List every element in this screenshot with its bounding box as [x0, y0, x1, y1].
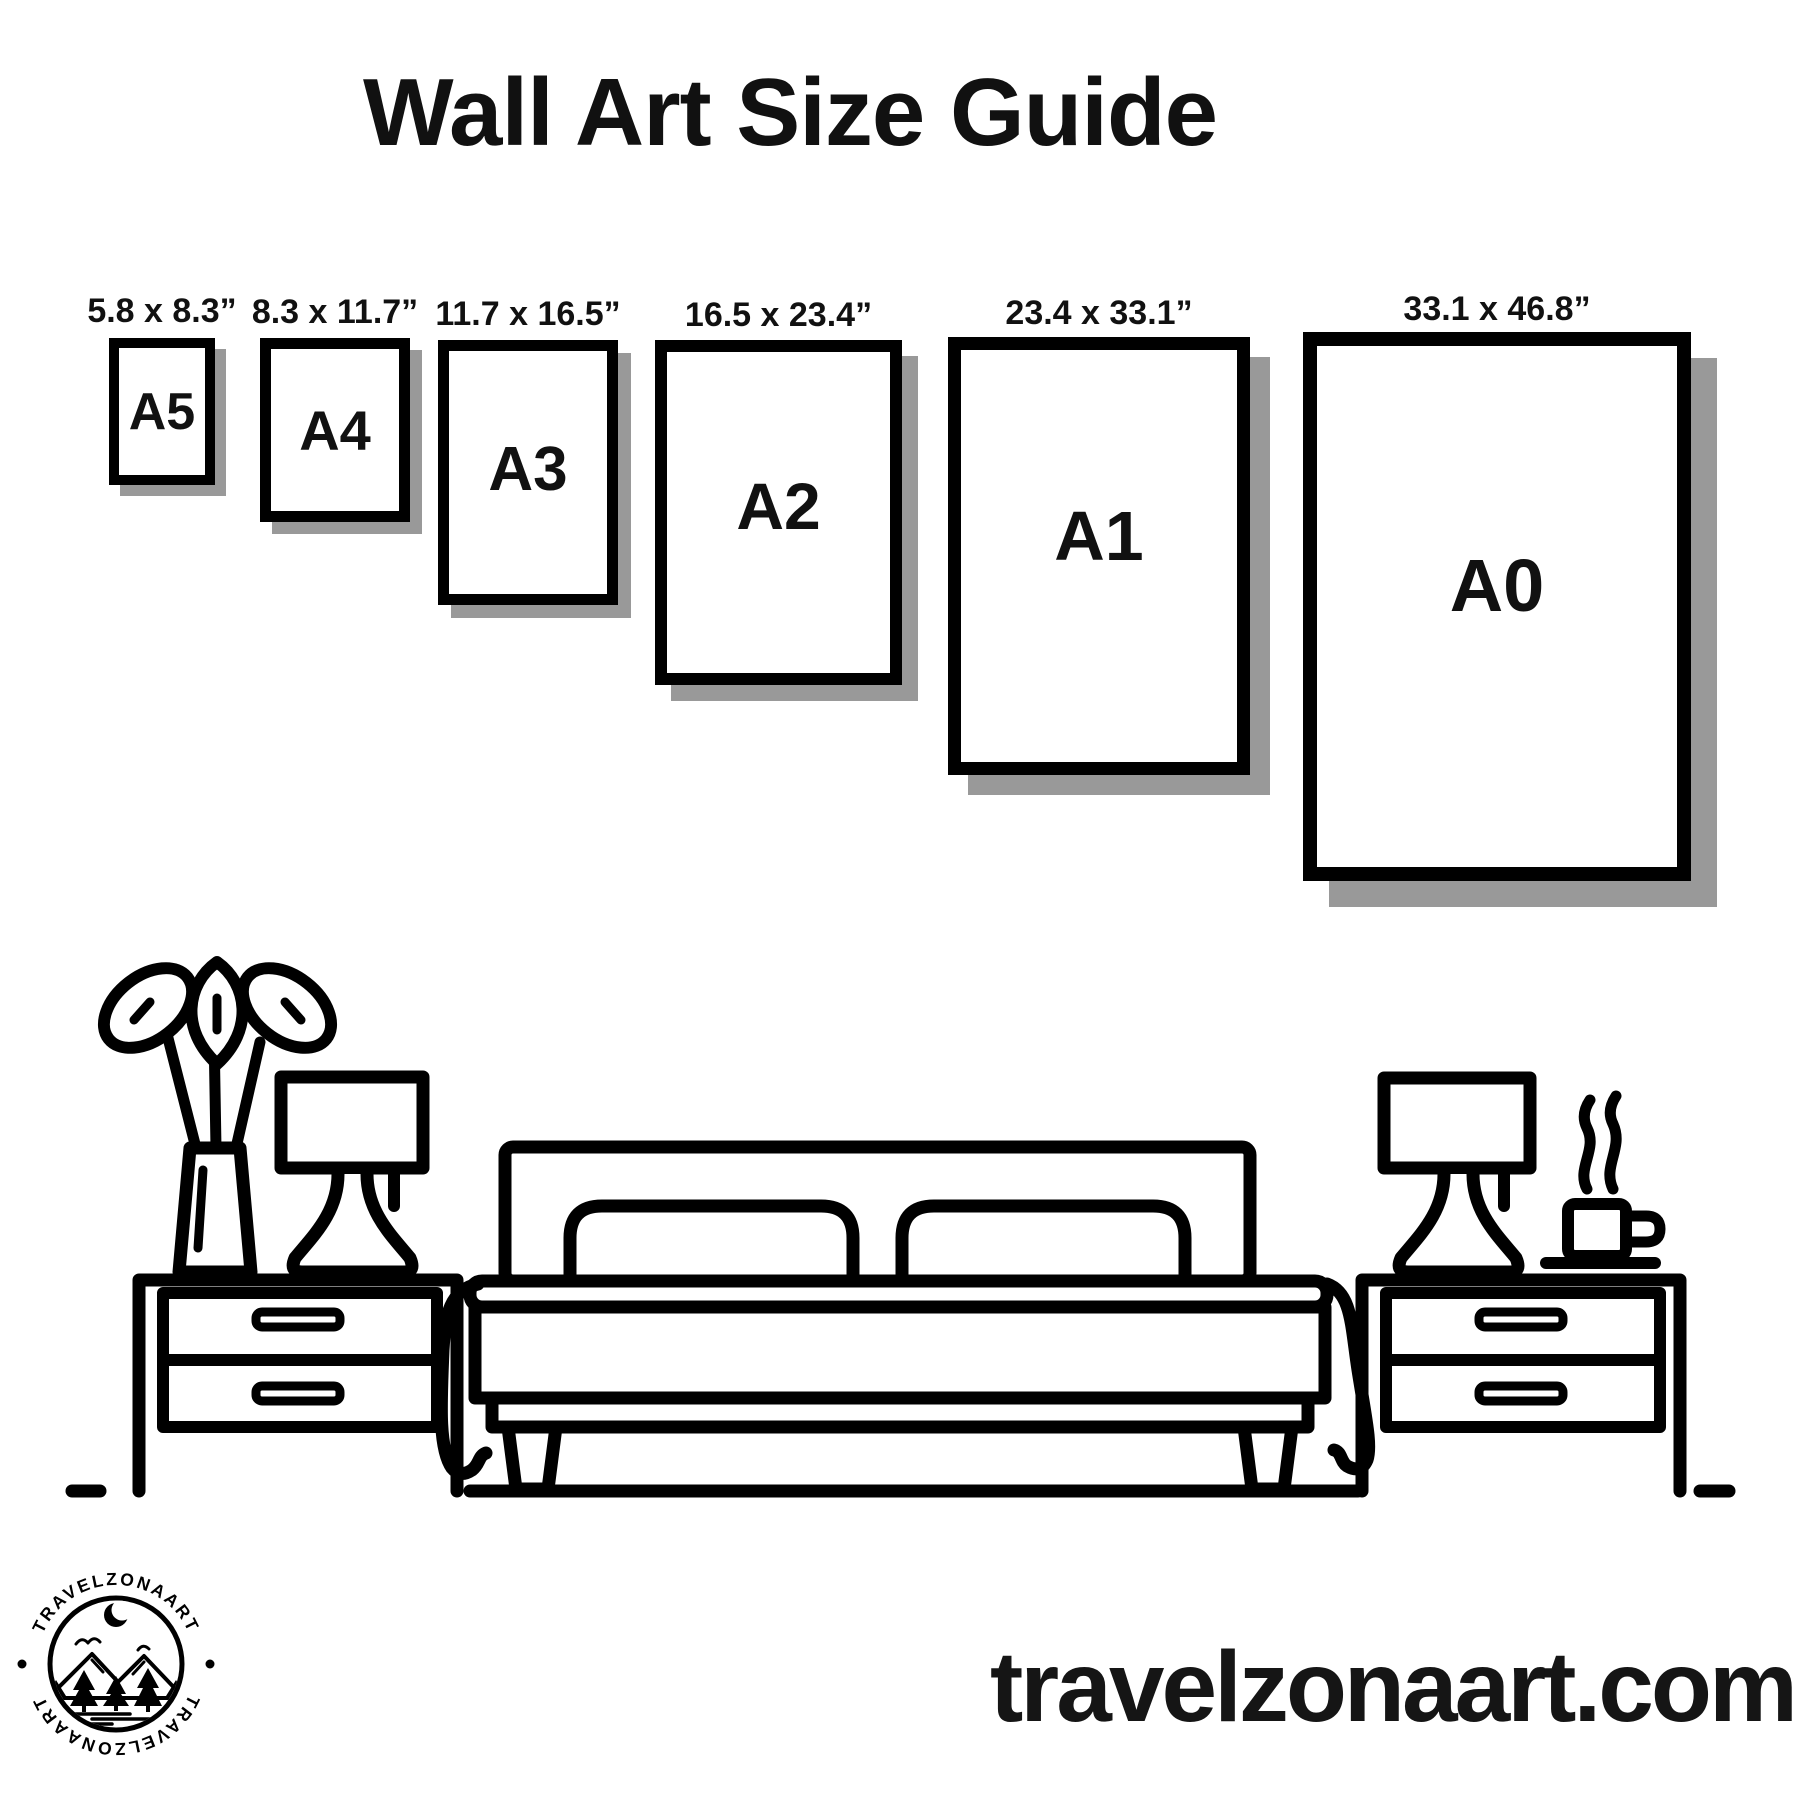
size-dimensions-label: 16.5 x 23.4” [685, 296, 872, 335]
drawer-handle-icon [1479, 1312, 1563, 1327]
coffee-mug-icon [1546, 1096, 1660, 1263]
table-lamp-left-icon [281, 1077, 423, 1272]
drawer-handle-icon [1479, 1386, 1563, 1401]
pillow-left-icon [570, 1206, 853, 1283]
vase-icon [179, 1148, 251, 1272]
logo-dot-icon [206, 1660, 215, 1669]
size-dimensions-label: 11.7 x 16.5” [435, 295, 620, 334]
pillow-right-icon [902, 1206, 1185, 1283]
steam-icon [1610, 1096, 1616, 1189]
size-dimensions-label: 8.3 x 11.7” [252, 293, 418, 332]
size-frame-A0: 33.1 x 46.8”A0 [1303, 332, 1691, 881]
size-frame-A1: 23.4 x 33.1”A1 [948, 337, 1250, 775]
website-url: travelzonaart.com [990, 1630, 1780, 1745]
logo-dot-icon [18, 1660, 27, 1669]
page-title: Wall Art Size Guide [140, 58, 1440, 168]
size-name-label: A0 [1450, 543, 1545, 628]
table-lamp-right-icon [1384, 1078, 1530, 1272]
size-frame-A4: 8.3 x 11.7”A4 [260, 338, 410, 522]
bedroom-illustration [0, 940, 1800, 1510]
nightstand-right-icon [1362, 1280, 1680, 1491]
size-name-label: A2 [736, 468, 820, 544]
size-dimensions-label: 33.1 x 46.8” [1403, 290, 1590, 329]
drawer-handle-icon [256, 1312, 340, 1327]
bed-icon [441, 1147, 1368, 1489]
size-name-label: A5 [129, 382, 195, 442]
steam-icon [1584, 1100, 1590, 1189]
size-frame-A2: 16.5 x 23.4”A2 [655, 340, 902, 685]
size-dimensions-label: 23.4 x 33.1” [1005, 294, 1192, 333]
size-name-label: A1 [1054, 496, 1143, 576]
brand-logo: TRAVELZONAART TRAVELZONAART [0, 1548, 232, 1780]
size-frame-A5: 5.8 x 8.3”A5 [109, 338, 215, 485]
nightstand-left-icon [139, 1280, 457, 1491]
size-name-label: A4 [299, 398, 371, 463]
drawer-handle-icon [256, 1386, 340, 1401]
size-frame-A3: 11.7 x 16.5”A3 [438, 340, 618, 605]
size-name-label: A3 [488, 434, 567, 505]
size-dimensions-label: 5.8 x 8.3” [87, 292, 236, 331]
